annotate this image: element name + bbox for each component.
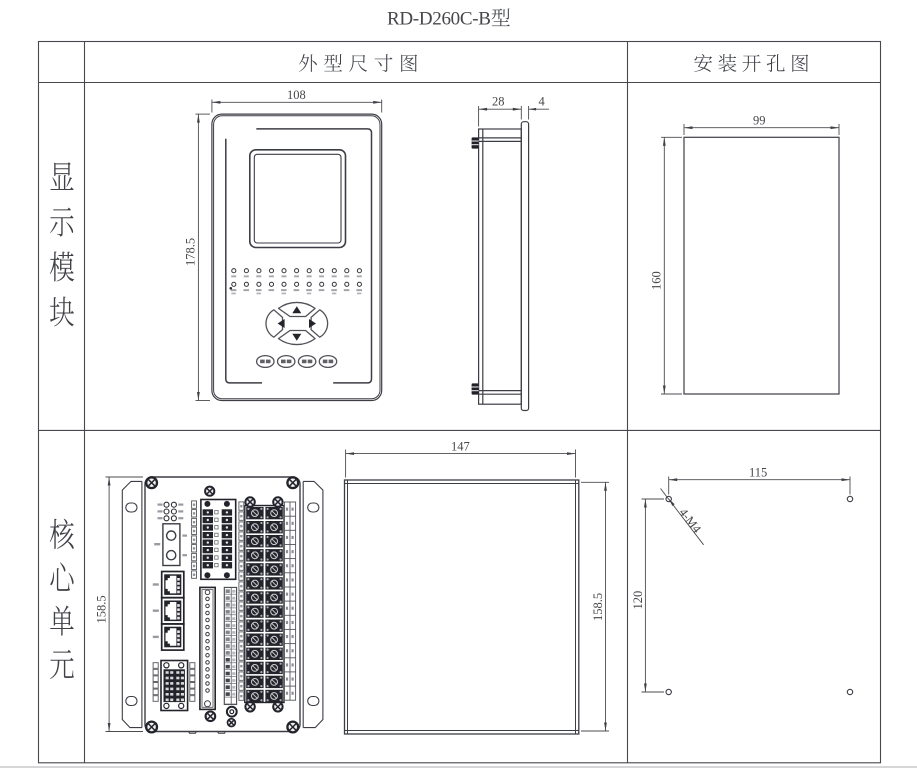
svg-text:4: 4 bbox=[539, 95, 546, 109]
svg-text:115: 115 bbox=[749, 465, 767, 479]
svg-text:178.5: 178.5 bbox=[184, 238, 198, 266]
svg-text:147: 147 bbox=[451, 439, 470, 453]
svg-text:120: 120 bbox=[631, 591, 645, 610]
svg-text:108: 108 bbox=[287, 88, 306, 102]
svg-text:158.5: 158.5 bbox=[591, 593, 605, 621]
svg-text:RD-D260C-B: RD-D260C-B bbox=[387, 9, 491, 30]
svg-text:99: 99 bbox=[753, 113, 766, 127]
svg-text:28: 28 bbox=[492, 95, 505, 109]
svg-text:158.5: 158.5 bbox=[95, 595, 109, 623]
svg-text:4-M4: 4-M4 bbox=[676, 506, 704, 536]
svg-text:160: 160 bbox=[650, 271, 664, 290]
